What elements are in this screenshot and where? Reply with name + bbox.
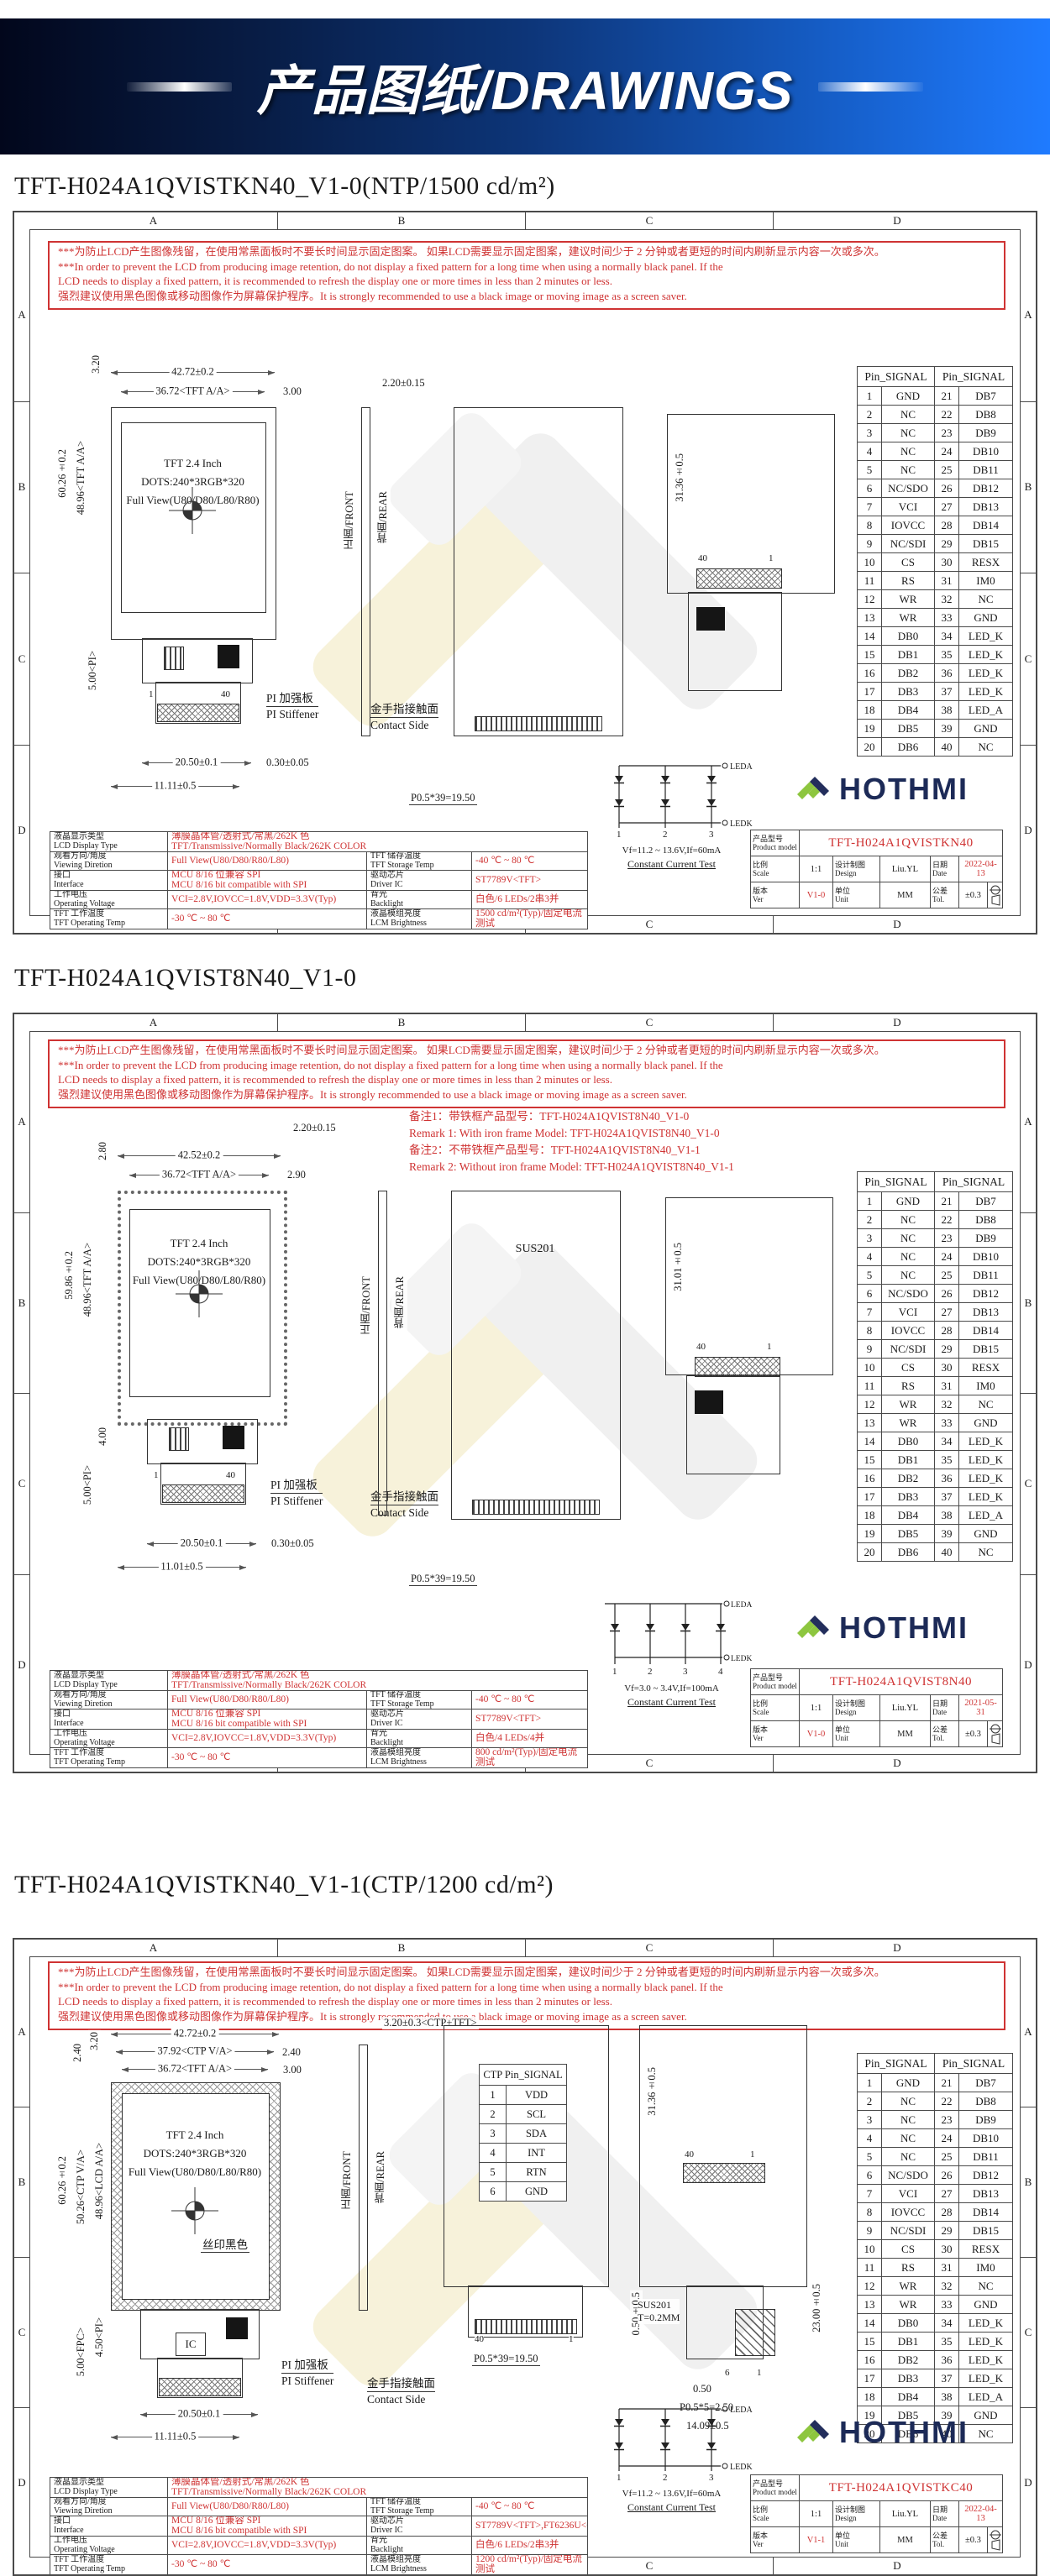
warning-box: ***为防止LCD产生图像残留，在使用常黑面板时不要长时间显示固定图案。 如果L… bbox=[48, 1961, 1005, 2030]
designer-value: Liu.YL bbox=[880, 856, 931, 882]
rear-gold-fingers bbox=[472, 1500, 600, 1515]
spec-row: TFT 工作温度 TFT Operating Temp-30 ℃ ~ 80 ℃液… bbox=[50, 909, 588, 929]
dim-fpc-width: 20.50±0.1 bbox=[147, 1543, 256, 1544]
pin-table-row: 8IOVCC28DB14 bbox=[858, 516, 1013, 535]
page-banner: 产品图纸/DRAWINGS bbox=[0, 18, 1050, 154]
pin-table-row: 3NC23DB9 bbox=[858, 424, 1013, 442]
spec-row: 观看方向/角度 Viewing DiretionFull View(U80/D8… bbox=[50, 852, 588, 871]
pin-table-row: 4NC24DB10 bbox=[858, 442, 1013, 461]
dim-rear-height: 31.36±0.5 bbox=[674, 452, 686, 504]
dim-ctp-tail-total: 23.00±0.5 bbox=[811, 2282, 823, 2334]
pin-table-row: 10CS30RESX bbox=[858, 2240, 1013, 2259]
sheet1-title: TFT-H024A1QVISTKN40_V1-0(NTP/1500 cd/m²) bbox=[14, 172, 555, 201]
led-test-note: Constant Current Test bbox=[590, 2501, 753, 2514]
drawing-sheet-3: TFT-H024A1QVISTKN40_V1-1(CTP/1200 cd/m²)… bbox=[13, 1871, 1037, 2573]
frame-rail-right: ABCD bbox=[1020, 229, 1036, 916]
pin-table-row: 9NC/SDI29DB15 bbox=[858, 535, 1013, 553]
rear-pin-last: 1 bbox=[769, 553, 774, 563]
dim-pin-pitch: P0.5*39=19.50 bbox=[409, 1573, 477, 1586]
dim-rear-height: 31.01±0.5 bbox=[672, 1241, 685, 1293]
pin-table-row: 10CS30RESX bbox=[858, 1359, 1013, 1377]
pin-table-row: 7VCI27DB13 bbox=[858, 498, 1013, 516]
iron-frame-material-label: SUS201 bbox=[451, 1243, 619, 1256]
date-value: 2022-04-13 bbox=[959, 856, 1003, 882]
dim-top-border1: 3.20 bbox=[88, 2030, 101, 2052]
pin-table-row: 8IOVCC28DB14 bbox=[858, 2203, 1013, 2222]
pin-table-row: 17DB337LED_K bbox=[858, 2369, 1013, 2388]
svg-text:3: 3 bbox=[709, 830, 714, 838]
dim-active-width: 36.72<TFT A/A> bbox=[122, 2069, 268, 2070]
pin-table-row: 14DB034LED_K bbox=[858, 627, 1013, 646]
pin-table-row: 17DB337LED_K bbox=[858, 1488, 1013, 1506]
fpc-pin-first: 1 bbox=[154, 1470, 159, 1480]
fpc-connector bbox=[218, 645, 239, 668]
spec-row: 观看方向/角度 Viewing DiretionFull View(U80/D8… bbox=[50, 2498, 588, 2516]
dim-thickness: 2.20±0.15 bbox=[381, 377, 427, 390]
drawing-sheet-1: TFT-H024A1QVISTKN40_V1-0(NTP/1500 cd/m²)… bbox=[13, 172, 1037, 932]
pin-table-row: 7VCI27DB13 bbox=[858, 1303, 1013, 1322]
rear-face-label: 背面/REAR bbox=[372, 2149, 388, 2205]
dim-ctp-height: 50.26<CTP V/A> bbox=[75, 2148, 87, 2226]
backlight-led-circuit: LEDA LEDK 1 2 3 Vf=11.2 ~ 13.6V,If=60mA … bbox=[590, 2397, 753, 2514]
rear-face-label: 背面/REAR bbox=[391, 1275, 407, 1330]
fpc-stiffener-bars bbox=[169, 1427, 189, 1451]
pin-table-row: 1GND21DB7 bbox=[858, 2074, 1013, 2092]
pin-table-row: 4NC24DB10 bbox=[858, 2129, 1013, 2148]
ctp-pin-row: 4INT bbox=[480, 2144, 567, 2163]
ctp-tail-pin-first: 6 bbox=[725, 2368, 730, 2378]
dim-fpc-offset: 11.11±0.5 bbox=[111, 786, 239, 787]
pin-table-row: 15DB135LED_K bbox=[858, 646, 1013, 664]
pin-table-row: 2NC22DB8 bbox=[858, 2092, 1013, 2111]
pin-table-row: 2NC22DB8 bbox=[858, 406, 1013, 424]
rear-fpc-strip bbox=[683, 2163, 765, 2183]
dim-gap: 3.00 bbox=[281, 2064, 303, 2076]
pin-table-row: 13WR33GND bbox=[858, 609, 1013, 627]
svg-text:4: 4 bbox=[718, 1667, 723, 1676]
ledk-label: LEDK bbox=[730, 2463, 753, 2472]
svg-text:2: 2 bbox=[648, 1667, 653, 1676]
pin-table-row: 5NC25DB11 bbox=[858, 1266, 1013, 1285]
spec-row: 接口 InterfaceMCU 8/16 位兼容 SPI MCU 8/16 bi… bbox=[50, 1709, 588, 1730]
title-block: 产品型号 Product modelTFT-H024A1QVIST8N40 比例… bbox=[750, 1668, 1003, 1747]
frame-rail-left: ABCD bbox=[14, 229, 30, 916]
projection-symbol-icon bbox=[988, 1721, 1003, 1747]
contact-side-callout: 金手指接触面Contact Side bbox=[370, 702, 438, 733]
dim-stiffener-thickness: 0.30±0.05 bbox=[270, 1537, 316, 1550]
tail-pin-first: 40 bbox=[475, 2334, 484, 2344]
rear-pin-last: 1 bbox=[750, 2149, 755, 2160]
backlight-led-circuit: LEDA LEDK 1 2 3 4 Vf=3.0 ~ 3.4V,If=100mA… bbox=[590, 1592, 753, 1709]
dim-outer-width: 42.72±0.2 bbox=[111, 372, 275, 373]
led-vf-spec: Vf=11.2 ~ 13.6V,If=60mA bbox=[590, 846, 753, 856]
rear-view-outline bbox=[451, 1191, 621, 1520]
pin-table-row: 18DB438LED_A bbox=[858, 1506, 1013, 1525]
spec-row: TFT 工作温度 TFT Operating Temp-30 ℃ ~ 80 ℃液… bbox=[50, 2555, 588, 2575]
dim-outer-height: 59.86±0.2 bbox=[63, 1249, 76, 1301]
dim-outer-height: 60.26±0.2 bbox=[56, 2155, 69, 2207]
warning-box: ***为防止LCD产生图像残留，在使用常黑面板时不要长时间显示固定图案。 如果L… bbox=[48, 241, 1005, 310]
led-vf-spec: Vf=11.2 ~ 13.6V,If=60mA bbox=[590, 2489, 753, 2499]
frame-rail-right: ABCD bbox=[1020, 1031, 1036, 1755]
dim-gap: 2.90 bbox=[286, 1169, 307, 1181]
tolerance-value: ±0.3 bbox=[959, 882, 988, 908]
pin-table-row: 5NC25DB11 bbox=[858, 2148, 1013, 2166]
driver-ic-box: IC bbox=[176, 2333, 206, 2356]
hothmi-logo-mark-icon bbox=[794, 2416, 832, 2449]
tail-pin-last: 1 bbox=[569, 2334, 574, 2344]
dim-top-border: 2.80 bbox=[97, 1140, 109, 1162]
frame-rail-right: ABCD bbox=[1020, 1956, 1036, 2558]
fpc-pin-first: 1 bbox=[149, 689, 154, 699]
frame-ruler-top: ABCD bbox=[29, 212, 1021, 230]
pin-table-row: 1GND21DB7 bbox=[858, 387, 1013, 406]
hothmi-logo-text: HOTHMI bbox=[839, 1610, 969, 1646]
pi-stiffener-callout: PI 加强板PI Stiffener bbox=[266, 691, 318, 722]
pin-table-row: 4NC24DB10 bbox=[858, 1248, 1013, 1266]
ctp-pin-row: 6GND bbox=[480, 2182, 567, 2202]
pin-table-row: 19DB539GND bbox=[858, 720, 1013, 738]
dim-outer-width: 42.52±0.2 bbox=[118, 1155, 281, 1156]
pin-table-row: 16DB236LED_K bbox=[858, 2351, 1013, 2369]
projection-symbol-icon bbox=[988, 2527, 1003, 2553]
pin-table-row: 10CS30RESX bbox=[858, 553, 1013, 572]
rear-folded-view bbox=[667, 414, 835, 594]
dim-fpc-offset: 11.01±0.5 bbox=[118, 1567, 246, 1568]
pin-table-row: 16DB236LED_K bbox=[858, 1469, 1013, 1488]
fpc-contact-strip bbox=[162, 1484, 244, 1503]
spec-row: 工作电压 Operating VoltageVCI=2.8V,IOVCC=1.8… bbox=[50, 2537, 588, 2555]
dim-fpc-height: 5.00<FPC> bbox=[75, 2326, 87, 2378]
svg-text:2: 2 bbox=[663, 2473, 668, 2481]
pin-table-row: 9NC/SDI29DB15 bbox=[858, 2222, 1013, 2240]
pin-table-row: 14DB034LED_K bbox=[858, 1432, 1013, 1451]
backlight-led-circuit: LEDA LEDK 1 2 3 Vf=11.2 ~ 13.6V,If=60mA … bbox=[590, 754, 753, 871]
pin-table-row: 18DB438LED_A bbox=[858, 2388, 1013, 2406]
spec-table: 液晶显示类型 LCD Display Type薄膜晶体管/透射式/常黑/262K… bbox=[50, 1670, 588, 1768]
ledk-label: LEDK bbox=[730, 819, 753, 829]
dim-pi-height: 5.00<PI> bbox=[87, 649, 99, 692]
pin-table-row: 6NC/SDO26DB12 bbox=[858, 479, 1013, 498]
dim-gap: 3.00 bbox=[281, 385, 303, 398]
rear-face-label: 背面/REAR bbox=[375, 490, 391, 545]
led-test-note: Constant Current Test bbox=[590, 1696, 753, 1709]
svg-text:1: 1 bbox=[612, 1667, 617, 1676]
svg-text:2: 2 bbox=[663, 830, 668, 838]
fpc-contact-strip bbox=[159, 2378, 241, 2396]
dim-top-border2: 2.40 bbox=[71, 2042, 84, 2064]
side-view-outline bbox=[378, 1191, 387, 1516]
scale-value: 1:1 bbox=[800, 856, 833, 882]
dim-ctp-gap: 2.40 bbox=[281, 2046, 302, 2059]
rear-pin-last: 1 bbox=[767, 1342, 772, 1352]
dim-bottom-border: 4.00 bbox=[97, 1426, 109, 1448]
pin-table-row: 20DB640NC bbox=[858, 1543, 1013, 1562]
pin-table-row: 3NC23DB9 bbox=[858, 1229, 1013, 1248]
pin-table-row: 11RS31IM0 bbox=[858, 572, 1013, 590]
pin-table-row: 9NC/SDI29DB15 bbox=[858, 1340, 1013, 1359]
rear-pin-first: 40 bbox=[685, 2149, 694, 2160]
rear-fpc-connector bbox=[696, 607, 725, 631]
dim-ctp-width: 37.92<CTP V/A> bbox=[116, 2051, 274, 2052]
sheet1-frame: ABCD ABCD ABCD ABCD ***为防止LCD产生图像残留，在使用常… bbox=[13, 211, 1037, 935]
pi-stiffener-callout: PI 加强板PI Stiffener bbox=[281, 2358, 333, 2389]
rear-view-outline bbox=[454, 407, 623, 736]
dim-stiffener-thickness: 0.30±0.05 bbox=[265, 757, 311, 769]
pin-signal-table: Pin_SIGNAL Pin_SIGNAL 1GND21DB7 2NC22DB8… bbox=[857, 366, 1013, 757]
hothmi-logo-mark-icon bbox=[794, 772, 832, 806]
iron-frame-remarks: 备注1：带铁框产品型号：TFT-H024A1QVIST8N40_V1-0 Rem… bbox=[409, 1108, 812, 1175]
dim-lcd-active-height: 48.96<LCD A/A> bbox=[93, 2141, 106, 2221]
svg-text:1: 1 bbox=[617, 2473, 622, 2481]
pin-table-row: 13WR33GND bbox=[858, 2296, 1013, 2314]
pin-table-row: 12WR32NC bbox=[858, 590, 1013, 609]
center-mark-icon bbox=[169, 487, 216, 534]
ctp-pin-row: 5RTN bbox=[480, 2163, 567, 2182]
ctp-pin-row: 2SCL bbox=[480, 2105, 567, 2124]
fpc-pin-last: 40 bbox=[221, 689, 230, 699]
rear-gold-fingers bbox=[475, 716, 602, 731]
pin-table-row: 5NC25DB11 bbox=[858, 461, 1013, 479]
fpc-contact-strip bbox=[157, 704, 239, 722]
projection-symbol-icon bbox=[988, 882, 1003, 908]
pin-table-row: 3NC23DB9 bbox=[858, 2111, 1013, 2129]
version-value: V1-0 bbox=[800, 882, 833, 908]
banner-dash-left bbox=[127, 82, 232, 92]
sus-plate-label: SUS201 T=0.2MM bbox=[638, 2299, 680, 2324]
pin-table-row: 1GND21DB7 bbox=[858, 1192, 1013, 1211]
pin-signal-table: Pin_SIGNAL Pin_SIGNAL 1GND21DB7 2NC22DB8… bbox=[857, 1171, 1013, 1562]
spec-row: 观看方向/角度 Viewing DiretionFull View(U80/D8… bbox=[50, 1691, 588, 1709]
rear-fpc-strip bbox=[696, 568, 782, 589]
dim-pi-height: 5.00<PI> bbox=[81, 1463, 94, 1506]
pin-table-row: 11RS31IM0 bbox=[858, 1377, 1013, 1395]
dim-top-border: 3.20 bbox=[90, 353, 102, 375]
product-model: TFT-H024A1QVIST8N40 bbox=[800, 1669, 1003, 1695]
pin-table-row: 6NC/SDO26DB12 bbox=[858, 2166, 1013, 2185]
hothmi-logo-mark-icon bbox=[794, 1611, 832, 1645]
frame-ruler-top: ABCD bbox=[29, 1014, 1021, 1032]
dim-fpc-width: 20.50±0.1 bbox=[142, 762, 251, 763]
sheet3-title: TFT-H024A1QVISTKN40_V1-1(CTP/1200 cd/m²) bbox=[14, 1871, 554, 1899]
pin-table-row: 15DB135LED_K bbox=[858, 1451, 1013, 1469]
hothmi-logo: HOTHMI bbox=[794, 1610, 969, 1646]
dim-rear-height: 31.36±0.5 bbox=[646, 2066, 659, 2118]
sheet2-title: TFT-H024A1QVIST8N40_V1-0 bbox=[14, 964, 357, 992]
led-test-note: Constant Current Test bbox=[590, 858, 753, 871]
leda-label: LEDA bbox=[731, 1601, 752, 1610]
spec-row: 接口 InterfaceMCU 8/16 位兼容 SPI MCU 8/16 bi… bbox=[50, 2516, 588, 2537]
contact-side-callout: 金手指接触面Contact Side bbox=[367, 2376, 435, 2407]
rear-fpc-connector bbox=[695, 1390, 723, 1414]
pin-table-row: 20DB640NC bbox=[858, 738, 1013, 757]
dim-ctp-tail-a: 0.50 bbox=[691, 2383, 713, 2395]
rear-pin-first: 40 bbox=[698, 553, 707, 563]
dim-active-height: 48.96<TFT A/A> bbox=[75, 439, 87, 516]
leda-label: LEDA bbox=[730, 762, 753, 772]
hothmi-logo-text: HOTHMI bbox=[839, 772, 969, 807]
silk-print-label: 丝印黑色 bbox=[201, 2235, 249, 2253]
side-view-outline bbox=[361, 407, 370, 736]
ctp-pin-table: CTP Pin_SIGNAL 1VDD2SCL3SDA4INT5RTN6GND bbox=[479, 2064, 567, 2202]
dim-pi-height: 4.50<PI> bbox=[93, 2316, 106, 2359]
pin-table-row: 12WR32NC bbox=[858, 2277, 1013, 2296]
pin-table-row: 14DB034LED_K bbox=[858, 2314, 1013, 2333]
ctp-tail-pin-last: 1 bbox=[757, 2368, 762, 2378]
banner-dash-right bbox=[818, 82, 923, 92]
dim-active-width: 36.72<TFT A/A> bbox=[129, 1175, 269, 1175]
fpc-connector bbox=[226, 2317, 248, 2339]
fpc-connector bbox=[223, 1426, 244, 1449]
dim-outer-height: 60.26±0.2 bbox=[56, 448, 69, 500]
spec-row: 工作电压 Operating VoltageVCI=2.8V,IOVCC=1.8… bbox=[50, 1730, 588, 1748]
dim-outer-width: 42.72±0.2 bbox=[111, 2034, 279, 2034]
dim-pin-pitch: P0.5*39=19.50 bbox=[409, 792, 477, 805]
pin-table-row: 7VCI27DB13 bbox=[858, 2185, 1013, 2203]
page-title: 产品图纸/DRAWINGS bbox=[257, 48, 794, 125]
led-vf-spec: Vf=3.0 ~ 3.4V,If=100mA bbox=[590, 1683, 753, 1694]
pin-table-row: 17DB337LED_K bbox=[858, 683, 1013, 701]
sheet3-frame: ABCD ABCD ABCD ABCD ***为防止LCD产生图像残留，在使用常… bbox=[13, 1938, 1037, 2576]
frame-rail-left: ABCD bbox=[14, 1031, 30, 1755]
pin-table-row: 19DB539GND bbox=[858, 1525, 1013, 1543]
svg-text:3: 3 bbox=[683, 1667, 688, 1676]
drawing-sheet-2: TFT-H024A1QVIST8N40_V1-0 ABCD ABCD ABCD … bbox=[13, 964, 1037, 1770]
rear-folded-view bbox=[639, 2025, 807, 2287]
leda-label: LEDA bbox=[730, 2406, 753, 2415]
title-block: 产品型号 Product modelTFT-H024A1QVISTKC40 比例… bbox=[750, 2474, 1003, 2553]
title-block: 产品型号 Product modelTFT-H024A1QVISTKN40 比例… bbox=[750, 830, 1003, 908]
unit-value: MM bbox=[880, 882, 931, 908]
side-view-outline bbox=[359, 2045, 368, 2311]
pin-table-row: 6NC/SDO26DB12 bbox=[858, 1285, 1013, 1303]
pin-table-row: 15DB135LED_K bbox=[858, 2333, 1013, 2351]
svg-text:3: 3 bbox=[709, 2473, 714, 2481]
front-face-label: 正面/FRONT bbox=[339, 2149, 354, 2211]
ledk-label: LEDK bbox=[731, 1655, 752, 1663]
center-mark-icon bbox=[171, 2187, 218, 2234]
pin-table-row: 2NC22DB8 bbox=[858, 1211, 1013, 1229]
product-model: TFT-H024A1QVISTKN40 bbox=[800, 830, 1003, 856]
pin-signal-table: Pin_SIGNAL Pin_SIGNAL 1GND21DB7 2NC22DB8… bbox=[857, 2053, 1013, 2443]
hothmi-logo: HOTHMI bbox=[794, 772, 969, 807]
rear-pin-first: 40 bbox=[696, 1342, 706, 1352]
ctp-pin-row: 3SDA bbox=[480, 2124, 567, 2144]
center-mark-icon bbox=[176, 1270, 223, 1317]
hothmi-logo-text: HOTHMI bbox=[839, 2415, 969, 2450]
ctp-pin-row: 1VDD bbox=[480, 2086, 567, 2105]
rear-folded-view bbox=[665, 1197, 833, 1375]
dim-thickness: 2.20±0.15 bbox=[291, 1122, 338, 1134]
product-model: TFT-H024A1QVISTKC40 bbox=[800, 2475, 1003, 2501]
pin-table-row: 12WR32NC bbox=[858, 1395, 1013, 1414]
front-face-label: 正面/FRONT bbox=[341, 490, 357, 551]
fpc-stiffener-bars bbox=[164, 647, 184, 670]
rear-fpc-strip bbox=[695, 1357, 780, 1377]
dim-fpc-width: 20.50±0.1 bbox=[140, 2414, 258, 2415]
dim-fpc-offset: 11.11±0.5 bbox=[111, 2437, 239, 2437]
pin-table-row: 16DB236LED_K bbox=[858, 664, 1013, 683]
pin-table-row: 8IOVCC28DB14 bbox=[858, 1322, 1013, 1340]
dim-active-height: 48.96<TFT A/A> bbox=[81, 1241, 94, 1318]
fpc-pin-last: 40 bbox=[226, 1470, 235, 1480]
svg-text:1: 1 bbox=[617, 830, 622, 838]
spec-table: 液晶显示类型 LCD Display Type薄膜晶体管/透射式/常黑/262K… bbox=[50, 831, 588, 929]
front-face-label: 正面/FRONT bbox=[358, 1275, 374, 1336]
hothmi-logo: HOTHMI bbox=[794, 2415, 969, 2450]
pin-table-header: Pin_SIGNAL bbox=[858, 367, 935, 387]
sus-plate bbox=[735, 2309, 775, 2356]
dim-pin-pitch: P0.5*39=19.50 bbox=[472, 2353, 540, 2366]
pi-stiffener-callout: PI 加强板PI Stiffener bbox=[270, 1478, 323, 1509]
spec-table: 液晶显示类型 LCD Display Type薄膜晶体管/透射式/常黑/262K… bbox=[50, 2477, 588, 2575]
pin-table-row: 13WR33GND bbox=[858, 1414, 1013, 1432]
sheet2-frame: ABCD ABCD ABCD ABCD ***为防止LCD产生图像残留，在使用常… bbox=[13, 1013, 1037, 1773]
display-description: TFT 2.4 Inch DOTS:240*3RGB*320 Full View… bbox=[111, 2126, 279, 2181]
pin-table-row: 18DB438LED_A bbox=[858, 701, 1013, 720]
frame-ruler-top: ABCD bbox=[29, 1940, 1021, 1957]
spec-row: 工作电压 Operating VoltageVCI=2.8V,IOVCC=1.8… bbox=[50, 891, 588, 909]
rear-gold-fingers bbox=[475, 2319, 577, 2334]
spec-row: 接口 InterfaceMCU 8/16 位兼容 SPI MCU 8/16 bi… bbox=[50, 871, 588, 891]
dim-active-width: 36.72<TFT A/A> bbox=[121, 391, 265, 392]
warning-box: ***为防止LCD产生图像残留，在使用常黑面板时不要长时间显示固定图案。 如果L… bbox=[48, 1039, 1005, 1108]
spec-row: TFT 工作温度 TFT Operating Temp-30 ℃ ~ 80 ℃液… bbox=[50, 1748, 588, 1768]
frame-rail-left: ABCD bbox=[14, 1956, 30, 2558]
pin-table-row: 11RS31IM0 bbox=[858, 2259, 1013, 2277]
